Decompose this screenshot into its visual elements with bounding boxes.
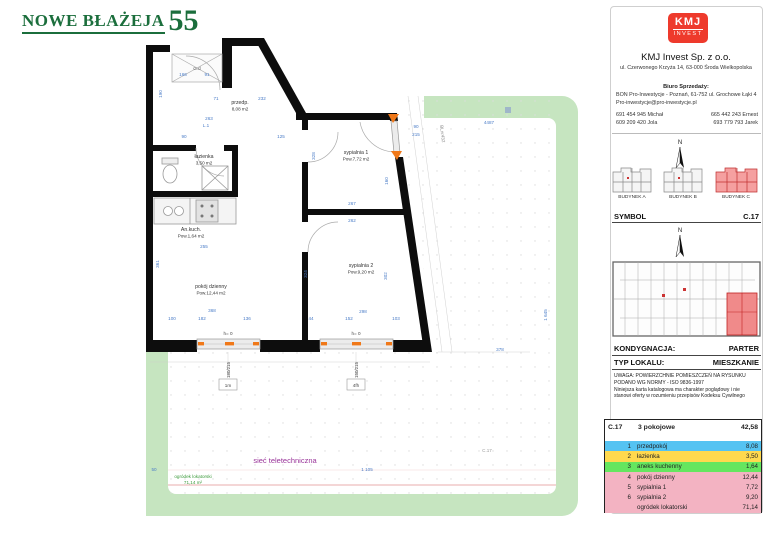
phone-right: 693 779 793 Jarek xyxy=(713,120,758,126)
room-area: 9,20 xyxy=(728,494,761,501)
logo-text-kmj: KMJ xyxy=(668,16,708,28)
symbol-row: SYMBOL C.17 xyxy=(614,212,759,221)
unit-type-row: TYP LOKALU: MIESZKANIE xyxy=(614,358,759,367)
table-symbol: C.17 xyxy=(605,424,634,431)
phone-left: 609 209 420 Jola xyxy=(616,120,657,126)
kmj-invest-logo: KMJ INVEST xyxy=(668,13,708,43)
building-c-label: BUDYNEK C xyxy=(712,195,760,200)
plan-text: 324 xyxy=(303,270,308,278)
plan-text: 378 xyxy=(496,347,504,352)
area-table-row: ogródek lokatorski71,14 xyxy=(605,503,761,513)
room-name: sypialnia 2 xyxy=(633,494,728,501)
sales-office-label: Biuro Sprzedaży: xyxy=(612,84,760,90)
area-table-row: 6sypialnia 29,20 xyxy=(605,492,761,502)
logo-text-invest: INVEST xyxy=(673,29,703,37)
plan-text: 50 xyxy=(151,467,157,472)
room-area: 71,14 xyxy=(728,504,761,511)
room-area: 12,44 xyxy=(728,474,761,481)
plan-text: 91 xyxy=(204,72,210,77)
plan-text: 215 xyxy=(412,132,420,137)
floor-row: KONDYGNACJA: PARTER xyxy=(614,344,759,353)
building-b-label: BUDYNEK B xyxy=(659,195,707,200)
plan-text: 150/215 xyxy=(354,362,359,378)
plan-text: 262 xyxy=(348,218,356,223)
area-table-header: C.17 3 pokojowe 42,58 xyxy=(605,420,761,434)
window-1 xyxy=(197,339,260,349)
legal-notice: UWAGA: POWIERZCHNIE POMIESZCZEŃ NA RYSUN… xyxy=(614,373,760,400)
plan-text: 302 xyxy=(383,272,388,280)
area-table-rows: 1przedpokój8,082łazienka3,503aneks kuche… xyxy=(605,441,761,513)
room-number: 5 xyxy=(605,484,633,491)
area-table-row: 3aneks kuchenny1,64 xyxy=(605,462,761,472)
plan-text: 180/215 xyxy=(226,362,231,378)
unit-type-label: TYP LOKALU: xyxy=(614,358,664,367)
plan-text: 136 xyxy=(243,316,251,321)
plan-text: 3,50 m2 xyxy=(196,161,213,166)
divider xyxy=(612,133,761,134)
notice-line: PODANO WG NORMY - ISO 9836-1997 xyxy=(614,380,760,387)
plan-text: łazienka xyxy=(194,154,213,160)
floor-value: PARTER xyxy=(729,344,759,353)
plan-text: 255 xyxy=(200,244,208,249)
divider xyxy=(612,369,761,370)
room-number: 6 xyxy=(605,494,633,501)
room-name: przedpokój xyxy=(633,443,728,450)
floor-label: KONDYGNACJA: xyxy=(614,344,675,353)
room-area: 7,72 xyxy=(728,484,761,491)
window-2 xyxy=(320,339,393,349)
garden-label: ogródek lokatorski xyxy=(174,474,211,479)
area-table-row: 2łazienka3,50 xyxy=(605,451,761,461)
room-area: 8,08 xyxy=(728,443,761,450)
plan-text: L.1 xyxy=(203,123,210,128)
notice-line: UWAGA: POWIERZCHNIE POMIESZCZEŃ NA RYSUN… xyxy=(614,373,760,380)
room-number: 3 xyxy=(605,463,633,470)
plan-text: 4487 xyxy=(484,120,495,125)
garden-area-label: 71,14 m² xyxy=(184,480,203,485)
plan-text: 368 xyxy=(208,308,216,313)
plan-text: Pow.7,72 m2 xyxy=(343,157,370,162)
plan-text: 1 645 xyxy=(543,309,548,321)
company-name: KMJ Invest Sp. z o.o. xyxy=(612,52,760,63)
plan-text: sypialnia 1 xyxy=(344,150,369,156)
company-address: ul. Czerwonego Krzyża 14, 63-000 Środa W… xyxy=(612,65,760,71)
divider xyxy=(612,222,761,223)
building-a-label: BUDYNEK A xyxy=(608,195,656,200)
plan-text: 263 xyxy=(205,116,213,121)
plan-text: Pow.12,44 m2 xyxy=(196,291,226,296)
room-name: łazienka xyxy=(633,453,728,460)
phone-row: 609 209 420 Jola693 779 793 Jarek xyxy=(616,120,758,126)
plan-text: C.17 xyxy=(482,448,492,453)
plan-text: 103 xyxy=(392,316,400,321)
plan-text: Pow.1,64 m2 xyxy=(178,234,205,239)
area-table-row: 4pokój dzienny12,44 xyxy=(605,472,761,482)
plan-text: 152 xyxy=(345,316,353,321)
plan-text: 1 105 xyxy=(361,467,373,472)
kitchen-counter xyxy=(154,198,236,224)
room-name: sypialnia 1 xyxy=(633,484,728,491)
telecom-network-label: sieć teletechniczna xyxy=(253,456,317,465)
plan-text: h= 0 xyxy=(351,331,361,336)
plan-text: 100 xyxy=(168,316,176,321)
room-number: 1 xyxy=(605,443,633,450)
plan-text: 4fh xyxy=(353,383,360,388)
sales-office-line2: Pro-inwestycje@pro-inwestycje.pl xyxy=(616,100,758,106)
notice-line: stanowi oferty w rozumieniu przepisów Ko… xyxy=(614,393,760,400)
plan-text: 298 xyxy=(359,309,367,314)
plan-text: 71 xyxy=(213,96,219,101)
plan-text: 1m xyxy=(225,383,232,388)
room-name: pokój dzienny xyxy=(633,474,728,481)
plan-text: 125 xyxy=(277,134,285,139)
phone-left: 691 454 945 Michał xyxy=(616,112,663,118)
catalog-page: NOWE BŁAŻEJA 55 sieć teletechniczna ogró… xyxy=(0,0,768,540)
plan-text: 267 xyxy=(348,201,356,206)
sales-office-line1: BON Pro-Inwestycje - Poznań, 61-752 ul. … xyxy=(616,92,758,98)
plan-text: 361 xyxy=(155,260,160,268)
plan-text: 160 xyxy=(384,177,389,185)
plan-text: 90 xyxy=(413,124,419,129)
divider xyxy=(612,355,761,356)
area-table: C.17 3 pokojowe 42,58 1przedpokój8,082ła… xyxy=(604,419,762,513)
area-table-row: 5sypialnia 17,72 xyxy=(605,482,761,492)
plan-text: h= 0 xyxy=(223,331,233,336)
notice-line: Niniejsza karta katalogowa ma charakter … xyxy=(614,387,760,394)
plan-text: 90 xyxy=(181,134,187,139)
plan-text: 8,08 m2 xyxy=(232,107,249,112)
room-area: 3,50 xyxy=(728,453,761,460)
table-unit-type: 3 pokojowe xyxy=(634,424,728,431)
room-number: 2 xyxy=(605,453,633,460)
phone-list: 691 454 945 Michał665 442 243 Ernest609 … xyxy=(616,112,758,128)
room-number: 4 xyxy=(605,474,633,481)
area-table-row: 1przedpokój8,08 xyxy=(605,441,761,451)
plan-text: 232 xyxy=(258,96,266,101)
plan-text: pokój dzienny xyxy=(195,284,227,290)
plan-text: Pow.9,20 m2 xyxy=(348,270,375,275)
phone-row: 691 454 945 Michał665 442 243 Ernest xyxy=(616,112,758,118)
plan-text: G.d xyxy=(193,66,201,71)
room-name: ogródek lokatorski xyxy=(633,504,728,511)
plan-text: 44 xyxy=(308,316,314,321)
plan-text: An.kuch. xyxy=(181,227,201,233)
table-total-area: 42,58 xyxy=(728,424,761,431)
unit-type-value: MIESZKANIE xyxy=(713,358,759,367)
plan-text: sypialnia 2 xyxy=(349,263,374,269)
room-name: aneks kuchenny xyxy=(633,463,728,470)
plan-text: 328 xyxy=(311,152,316,160)
plan-text: 166 xyxy=(179,72,187,77)
plan-text: 190 xyxy=(158,90,163,98)
symbol-value: C.17 xyxy=(743,212,759,221)
room-area: 1,64 xyxy=(728,463,761,470)
symbol-label: SYMBOL xyxy=(614,212,646,221)
plan-text: przedp. xyxy=(231,100,248,106)
plan-text: 182 xyxy=(198,316,206,321)
phone-right: 665 442 243 Ernest xyxy=(711,112,758,118)
